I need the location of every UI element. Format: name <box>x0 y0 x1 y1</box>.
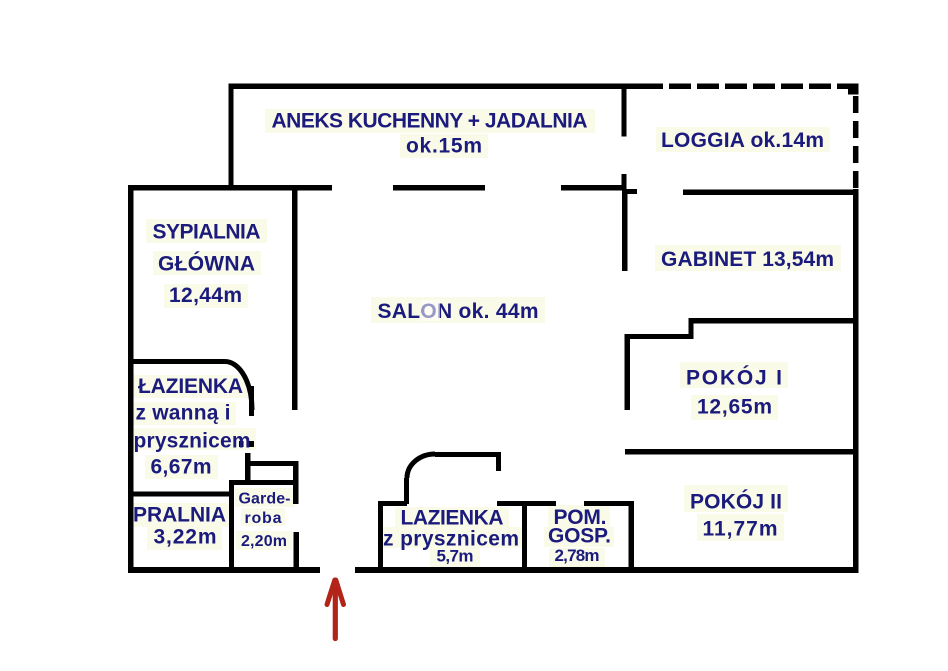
svg-text:z wanną i: z wanną i <box>136 402 231 425</box>
svg-text:POKÓJ II: POKÓJ II <box>690 490 782 514</box>
svg-text:3,22m: 3,22m <box>154 526 217 549</box>
svg-text:5,7m: 5,7m <box>437 547 474 566</box>
svg-text:2,20m: 2,20m <box>241 533 287 550</box>
svg-text:LAZIENKA: LAZIENKA <box>401 507 504 530</box>
svg-text:ANEKS KUCHENNY + JADALNIA: ANEKS KUCHENNY + JADALNIA <box>272 110 588 133</box>
svg-text:LOGGIA ok.14m: LOGGIA ok.14m <box>661 129 824 152</box>
svg-text:ŁAZIENKA: ŁAZIENKA <box>138 375 243 398</box>
svg-text:prysznicem: prysznicem <box>134 430 251 453</box>
svg-text:6,67m: 6,67m <box>151 456 212 479</box>
svg-text:Garde-: Garde- <box>239 491 291 508</box>
svg-text:2,78m: 2,78m <box>555 546 600 565</box>
svg-text:ok.15m: ok.15m <box>406 135 482 158</box>
svg-text:GOSP.: GOSP. <box>548 525 611 548</box>
svg-text:12,65m: 12,65m <box>697 396 772 419</box>
svg-text:SYPIALNIA: SYPIALNIA <box>153 221 261 244</box>
svg-text:SALON ok. 44m: SALON ok. 44m <box>378 300 539 323</box>
svg-text:12,44m: 12,44m <box>169 284 242 307</box>
svg-text:11,77m: 11,77m <box>703 518 778 541</box>
svg-text:roba: roba <box>245 510 282 527</box>
svg-text:GŁÓWNA: GŁÓWNA <box>158 252 255 276</box>
svg-text:GABINET 13,54m: GABINET 13,54m <box>661 248 834 271</box>
svg-text:PRALNIA: PRALNIA <box>133 504 226 527</box>
